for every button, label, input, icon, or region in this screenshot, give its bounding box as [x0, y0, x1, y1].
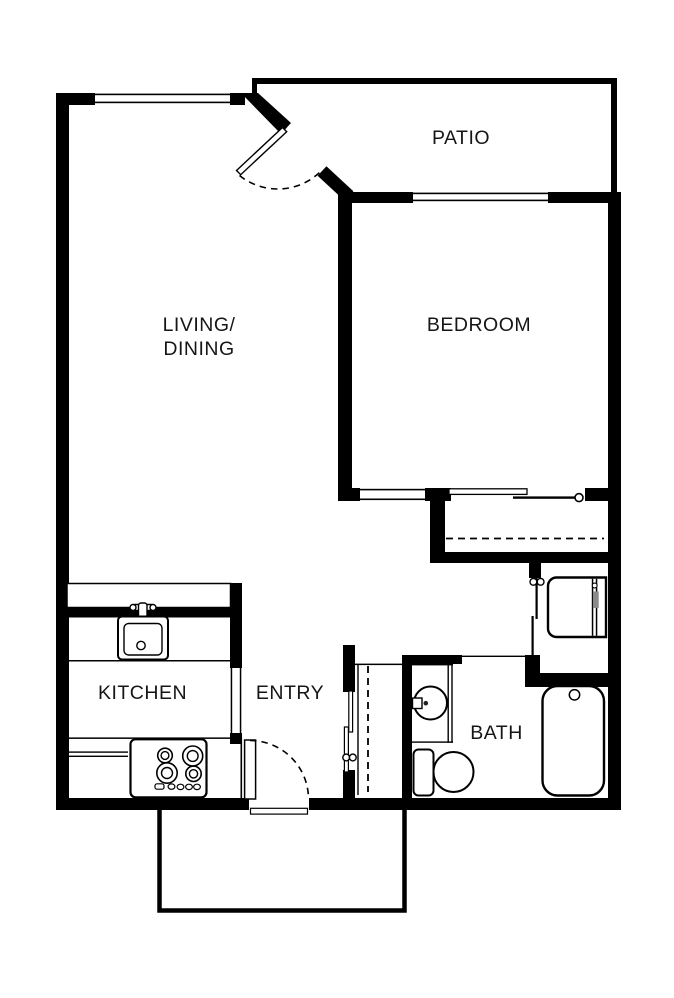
wall-top-seg2 [230, 93, 245, 105]
vanity-counter-edge [412, 741, 453, 742]
patio-label: PATIO [432, 127, 490, 149]
toilet [414, 750, 474, 796]
door-swing-arc [240, 173, 320, 190]
porch-outline [160, 806, 405, 911]
kitchen-right-wall [230, 583, 242, 668]
entry-closet-wall-upper [343, 645, 355, 692]
entry-label: ENTRY [256, 682, 324, 704]
bypass-door-panel [449, 489, 527, 495]
stove-control [155, 784, 164, 789]
entry-closet-wall-lower [343, 770, 355, 798]
stove-knob-icon [194, 784, 201, 789]
opening-line [360, 489, 425, 491]
front-door-gap [249, 798, 309, 808]
wall-top-seg1 [56, 93, 95, 105]
bath-top-wall [402, 655, 462, 664]
bath-label: BATH [470, 722, 523, 744]
living-window-line [95, 94, 230, 96]
door-threshold [251, 808, 308, 814]
stove-knob-icon [186, 784, 193, 789]
door-swing-arc [250, 741, 309, 800]
bedroom-left-wall [338, 192, 352, 501]
bedroom-label: BEDROOM [427, 314, 531, 336]
faucet-handle-icon [130, 605, 136, 611]
door-leaf [237, 128, 287, 175]
sink-basin-inner [124, 624, 162, 656]
kitchen-counter-edge [241, 737, 243, 798]
front-door [245, 740, 309, 808]
sink-drain-icon [424, 701, 429, 706]
bath-doorway-threshold [462, 656, 525, 657]
bypass-door-panel [513, 496, 579, 498]
bedroom-bottom-wall-seg3 [585, 488, 608, 501]
living-window-line [95, 102, 230, 104]
door-pull-icon [575, 494, 583, 502]
sliding-door-panel [532, 616, 534, 658]
door-pull-icon [349, 754, 356, 761]
bedroom-window-line [413, 200, 548, 202]
closet-partition-wall [430, 501, 445, 559]
entry-porch [160, 806, 405, 911]
closet-left-line [357, 664, 358, 795]
wall-bottom-right [309, 798, 621, 810]
vanity-counter-edge [412, 664, 453, 665]
wall-left [56, 93, 69, 810]
bedroom-window-line [413, 193, 548, 195]
toilet-bowl [434, 752, 474, 792]
utility-closet-stub [529, 563, 541, 578]
range-stove [131, 739, 207, 797]
bathtub [543, 686, 605, 796]
floor-plan-page: LIVING/ DINING BEDROOM PATIO KITCHEN ENT… [0, 0, 674, 998]
bathroom-sink [413, 687, 448, 720]
counter-drawer-line [68, 751, 128, 752]
bath-corner-wall-v [525, 655, 540, 687]
opening-line [231, 668, 233, 733]
toilet-tank [414, 750, 434, 796]
kitchen-opening [231, 668, 242, 733]
bedroom-bottom-wall-seg2 [425, 488, 451, 501]
corner-patio-door [237, 128, 320, 190]
interior-walls [65, 192, 621, 798]
tub-body [543, 686, 605, 796]
floor-plan-drawing: LIVING/ DINING BEDROOM PATIO KITCHEN ENT… [0, 0, 674, 998]
utility-closet [530, 578, 606, 659]
door-pull-icon [343, 754, 350, 761]
patio-wall-step [252, 78, 257, 96]
bedroom-door-opening [360, 489, 425, 500]
living-dining-label-line2: DINING [163, 338, 234, 360]
door-leaf [245, 740, 256, 799]
vanity-counter-edge [451, 664, 452, 743]
living-window [95, 93, 230, 105]
kitchen-label: KITCHEN [98, 682, 187, 704]
patio-wall-right [611, 78, 617, 196]
appliance-knob-icon [592, 583, 597, 588]
entry-closet-right-wall [402, 664, 412, 798]
patio-wall-top [252, 78, 617, 84]
bedroom-bottom-wall-seg1 [338, 488, 360, 501]
closet-top-line [355, 664, 402, 666]
wall-bottom-left [56, 798, 249, 810]
sink-drain-icon [137, 641, 145, 649]
door-pull-icon [537, 578, 544, 585]
wall-right [608, 192, 621, 810]
tub-drain-icon [569, 690, 579, 700]
bypass-door-panel [349, 691, 353, 732]
closet-bottom-wall [430, 552, 621, 563]
bedroom-closet [446, 489, 604, 539]
opening-line [240, 668, 242, 733]
faucet-handle-icon [150, 605, 156, 611]
stove-knob-icon [168, 784, 175, 789]
opening-line [360, 499, 425, 501]
living-dining-label-line1: LIVING/ [163, 314, 236, 336]
stove-knob-icon [177, 784, 184, 789]
counter-drawer-line [68, 756, 128, 757]
bypass-door-panel [344, 727, 348, 772]
faucet-icon [413, 698, 423, 709]
door-pull-icon [530, 578, 537, 585]
bedroom-top-wall-seg2 [548, 192, 621, 203]
appliance-handle [593, 592, 599, 609]
bedroom-window [413, 193, 548, 202]
